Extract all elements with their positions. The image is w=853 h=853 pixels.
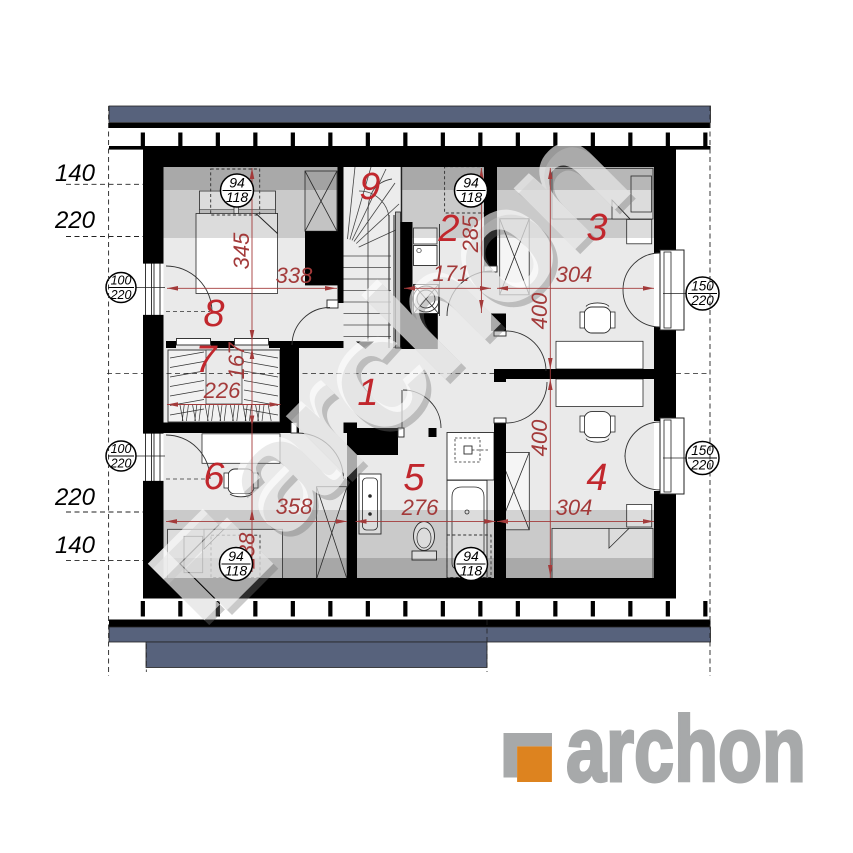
svg-text:118: 118 — [460, 189, 483, 205]
svg-text:226: 226 — [203, 378, 241, 403]
svg-text:220: 220 — [110, 457, 132, 471]
svg-text:140: 140 — [55, 532, 96, 559]
svg-text:archon: archon — [566, 697, 806, 801]
svg-text:220: 220 — [690, 293, 714, 308]
svg-text:4: 4 — [586, 457, 607, 499]
svg-text:285: 285 — [458, 215, 483, 253]
svg-text:220: 220 — [110, 288, 132, 302]
svg-text:8: 8 — [203, 293, 224, 335]
svg-text:118: 118 — [226, 189, 249, 205]
svg-text:6: 6 — [203, 456, 225, 498]
svg-text:9: 9 — [359, 166, 380, 208]
svg-text:2: 2 — [437, 208, 459, 250]
svg-text:5: 5 — [403, 457, 425, 499]
svg-text:1: 1 — [357, 372, 378, 414]
svg-text:7: 7 — [195, 339, 218, 381]
svg-text:304: 304 — [556, 262, 593, 287]
svg-text:3: 3 — [586, 207, 607, 249]
svg-text:150: 150 — [691, 279, 714, 294]
svg-text:220: 220 — [690, 458, 714, 473]
svg-text:100: 100 — [111, 442, 132, 456]
svg-text:118: 118 — [225, 563, 248, 579]
svg-text:358: 358 — [276, 494, 313, 519]
svg-text:100: 100 — [111, 274, 132, 288]
svg-text:220: 220 — [54, 207, 96, 234]
svg-text:338: 338 — [276, 263, 313, 288]
svg-text:220: 220 — [54, 484, 96, 511]
svg-text:118: 118 — [460, 563, 483, 579]
svg-text:400: 400 — [527, 419, 552, 456]
svg-text:140: 140 — [55, 160, 96, 187]
svg-text:400: 400 — [527, 292, 552, 329]
svg-text:167: 167 — [224, 342, 249, 379]
svg-text:150: 150 — [691, 443, 714, 458]
svg-text:171: 171 — [433, 261, 470, 286]
svg-text:345: 345 — [229, 232, 254, 269]
